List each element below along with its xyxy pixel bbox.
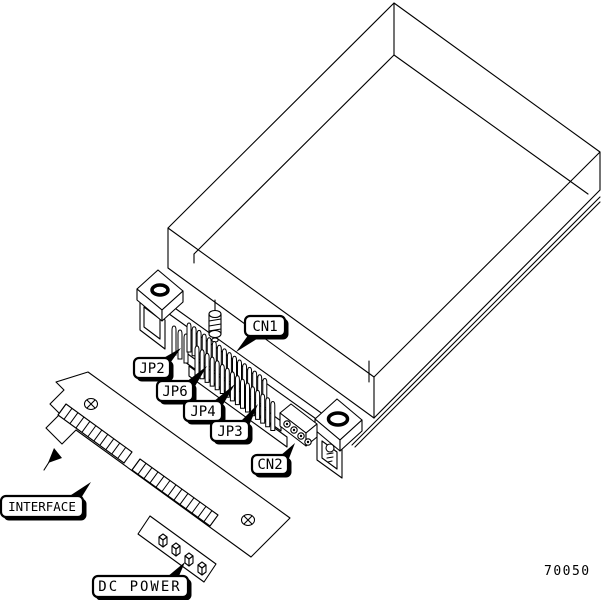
callout-cn1-label: CN1	[252, 319, 277, 335]
callout-jp4-label: JP4	[190, 404, 215, 420]
diagram-canvas: CN1 JP2 JP6 JP4 JP3 CN2 INTERFACE	[0, 0, 601, 600]
board-screw-right	[242, 515, 255, 526]
callout-jp6-label: JP6	[162, 384, 187, 400]
bracket-hole	[329, 413, 348, 425]
bracket-hole	[152, 285, 168, 295]
callout-interface-label: INTERFACE	[8, 499, 76, 514]
figure-number: 70050	[544, 564, 591, 579]
callout-jp2-label: JP2	[139, 361, 164, 377]
callout-jp3-label: JP3	[217, 424, 242, 440]
callout-cn2-label: CN2	[257, 457, 282, 473]
hardware-diagram: CN1 JP2 JP6 JP4 JP3 CN2 INTERFACE	[0, 0, 601, 600]
board-screw-left	[85, 399, 98, 410]
callout-dc-power-label: DC POWER	[98, 579, 181, 595]
